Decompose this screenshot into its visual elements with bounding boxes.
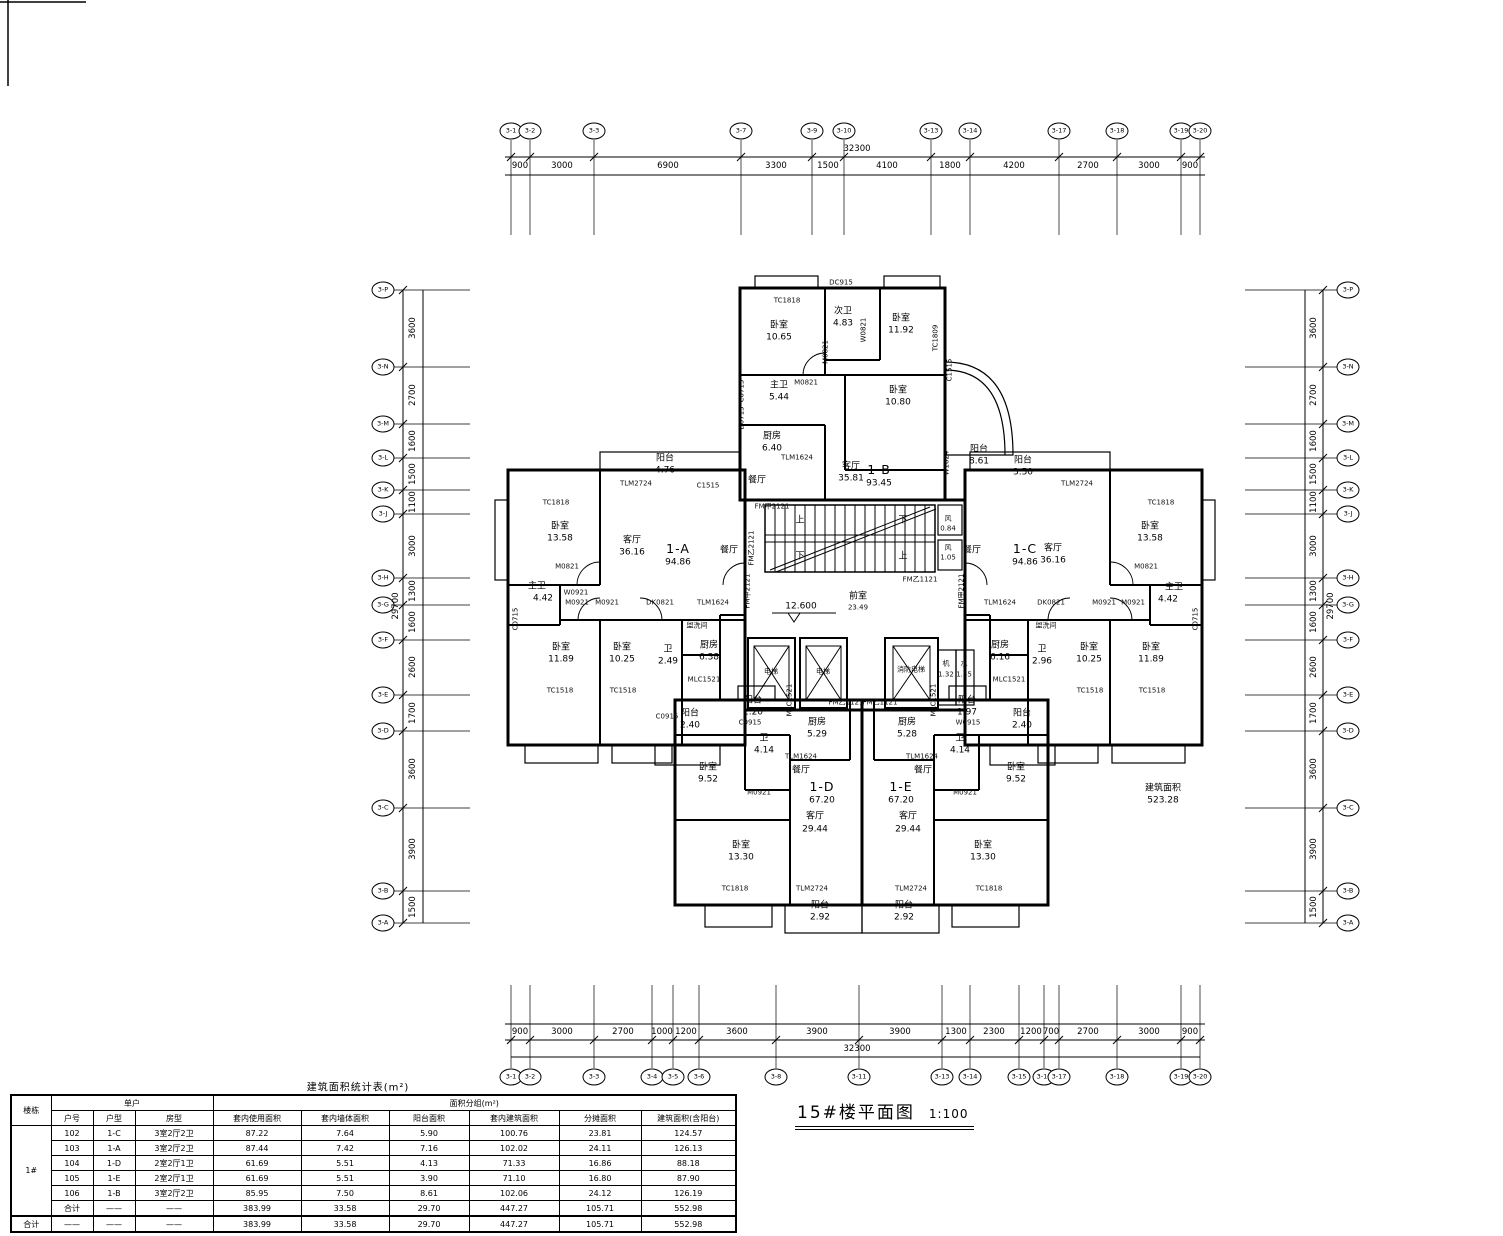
grid-bubble: 3-F: [372, 632, 395, 649]
room-label: 卧室: [551, 523, 569, 532]
table-cell: 合计: [51, 1201, 93, 1217]
level-marker: [772, 613, 836, 622]
table-header-cell: 分摊面积: [559, 1111, 641, 1126]
room-label: 67.20: [888, 797, 914, 806]
room-label: 厨房: [700, 642, 718, 651]
grid-bubble: 3-N: [372, 359, 395, 376]
grid-bubble: 3-14: [959, 1069, 982, 1086]
room-label: 2.49: [658, 658, 678, 667]
component-code-label: TLM2724: [1061, 481, 1093, 488]
grid-bubble: 3-13: [931, 1069, 954, 1086]
room-label: 29.44: [802, 826, 828, 835]
room-label: 6.16: [990, 654, 1010, 663]
dimension-value: 3600: [1310, 317, 1319, 339]
grid-bubble: 3-J: [1337, 506, 1360, 523]
dimension-value: 3900: [889, 1028, 911, 1037]
dimension-total: 32300: [843, 1045, 870, 1054]
grid-bubble: 3-17: [1048, 1069, 1071, 1086]
grid-bubble: 3-9: [801, 123, 824, 140]
room-label: 厨房: [898, 719, 916, 728]
component-code-label: FM乙1121: [903, 577, 938, 584]
dimension-value: 3600: [726, 1028, 748, 1037]
table-cell: 102.06: [469, 1186, 559, 1201]
grid-bubble: 3-3: [583, 1069, 606, 1086]
table-cell: 71.33: [469, 1156, 559, 1171]
room-label: 67.20: [809, 797, 835, 806]
room-label: 厨房: [763, 433, 781, 442]
table-cell: 合计: [11, 1216, 51, 1232]
table-cell: 5.90: [389, 1126, 469, 1141]
area-stats-table: 楼栋单户面积分组(m²)户号户型房型套内使用面积套内墙体面积阳台面积套内建筑面积…: [10, 1094, 737, 1233]
room-label: 29.44: [895, 826, 921, 835]
component-code-label: TC1518: [610, 688, 637, 695]
dimension-value: 1800: [939, 162, 961, 171]
room-label: 9.52: [1006, 776, 1026, 785]
table-cell: 1-E: [93, 1171, 135, 1186]
room-label: 下: [795, 553, 804, 562]
dimension-value: 2600: [409, 656, 418, 678]
room-label: 前室: [849, 593, 867, 602]
grid-bubble: 3-B: [372, 883, 395, 900]
dimension-value: 2600: [1310, 656, 1319, 678]
room-label: 卧室: [699, 764, 717, 773]
dimension-value: 4100: [876, 162, 898, 171]
table-cell: 16.80: [559, 1171, 641, 1186]
component-code-label: TLM2724: [620, 481, 652, 488]
grid-bubble: 3-C: [372, 800, 395, 817]
table-cell: 3室2厅2卫: [135, 1141, 213, 1156]
room-label: 13.58: [547, 535, 573, 544]
table-header-cell: 楼栋: [11, 1095, 51, 1126]
room-label: 卫: [1037, 646, 1046, 655]
room-label: 卧室: [1080, 644, 1098, 653]
room-label: 餐厅: [792, 767, 810, 776]
table-cell: 7.50: [301, 1186, 389, 1201]
room-label: 阳台: [970, 446, 988, 455]
component-code-label: FM甲2121: [959, 574, 966, 609]
dimension-total: 32300: [843, 145, 870, 154]
table-cell: 383.99: [213, 1216, 301, 1232]
room-label: 卧室: [892, 315, 910, 324]
component-code-label: FM乙1121: [829, 700, 864, 707]
room-label: 餐厅: [914, 767, 932, 776]
table-cell: 33.58: [301, 1216, 389, 1232]
grid-bubble: 3-7: [730, 123, 753, 140]
room-label: 4.76: [655, 467, 675, 476]
dimension-value: 2700: [1077, 1028, 1099, 1037]
grid-bubble: 3-P: [372, 282, 395, 299]
table-cell: 23.81: [559, 1126, 641, 1141]
component-code-label: TC1818: [543, 500, 570, 507]
component-code-label: 消防电梯: [897, 667, 925, 674]
room-label: 13.30: [970, 854, 996, 863]
room-label: 厨房: [808, 719, 826, 728]
dimension-value: 3000: [1138, 1028, 1160, 1037]
grid-bubble: 3-L: [1337, 450, 1360, 467]
component-code-label: TLM1624: [781, 455, 813, 462]
room-label: 36.16: [619, 549, 645, 558]
dimension-value: 3000: [1138, 162, 1160, 171]
table-row: 1031-A3室2厅2卫87.447.427.16102.0224.11126.…: [11, 1141, 736, 1156]
room-label: 卧室: [1142, 644, 1160, 653]
table-header-cell: 套内建筑面积: [469, 1111, 559, 1126]
room-label: 上: [795, 517, 804, 526]
room-label: 13.58: [1137, 535, 1163, 544]
room-label: 卫: [663, 646, 672, 655]
table-cell: 8.61: [389, 1186, 469, 1201]
component-code-label: DC915: [829, 280, 853, 287]
component-code-label: FM甲2121: [745, 574, 752, 609]
component-code-label: TLM2724: [796, 886, 828, 893]
grid-bubble: 3-N: [1337, 359, 1360, 376]
room-label: 1.20: [743, 709, 763, 718]
room-label: 4.83: [833, 320, 853, 329]
component-code-label: 1.32: [938, 672, 954, 679]
dimension-value: 1300: [1310, 580, 1319, 602]
grid-bubble: 3-4: [641, 1069, 664, 1086]
dimension-value: 900: [1182, 1028, 1198, 1037]
table-cell: 29.70: [389, 1216, 469, 1232]
room-label: 10.80: [885, 399, 911, 408]
room-label: 客厅: [899, 813, 917, 822]
dimension-total: 29700: [392, 592, 401, 619]
dimension-value: 3000: [551, 1028, 573, 1037]
grid-bubble: 3-B: [1337, 883, 1360, 900]
room-label: 卧室: [732, 842, 750, 851]
dimension-value: 1500: [409, 463, 418, 485]
dimension-value: 1300: [409, 580, 418, 602]
room-label: 卧室: [1141, 523, 1159, 532]
unit-id-label: 1-D: [809, 781, 834, 794]
table-cell: 4.13: [389, 1156, 469, 1171]
table-cell: ——: [51, 1216, 93, 1232]
grid-bubble: 3-11: [848, 1069, 871, 1086]
grid-bubble: 3-G: [1337, 597, 1360, 614]
component-code-label: 0.84: [940, 526, 956, 533]
table-caption: 建筑面积统计表(m²): [307, 1079, 410, 1094]
table-header-cell: 房型: [135, 1111, 213, 1126]
room-label: 11.89: [548, 656, 574, 665]
room-label: 客厅: [806, 813, 824, 822]
grid-bubble: 3-E: [372, 687, 395, 704]
table-cell: 3室2厅2卫: [135, 1126, 213, 1141]
component-code-label: TC1818: [722, 886, 749, 893]
grid-bubble: 3-K: [1337, 482, 1360, 499]
table-grand-total-row: 合计——————383.9933.5829.70447.27105.71552.…: [11, 1216, 736, 1232]
table-cell: 102.02: [469, 1141, 559, 1156]
dimension-value: 900: [1182, 162, 1198, 171]
component-code-label: MLC1521: [787, 684, 794, 717]
component-code-label: M0921: [565, 600, 589, 607]
table-cell: 106: [51, 1186, 93, 1201]
room-label: 5.44: [769, 394, 789, 403]
table-cell: ——: [135, 1201, 213, 1217]
table-cell: 552.98: [641, 1216, 736, 1232]
room-label: 10.25: [609, 656, 635, 665]
room-label: 94.86: [665, 559, 691, 568]
table-cell: 87.90: [641, 1171, 736, 1186]
component-code-label: DK0821: [1037, 600, 1065, 607]
table-cell: 24.12: [559, 1186, 641, 1201]
dimension-value: 3600: [409, 758, 418, 780]
dimension-value: 1500: [817, 162, 839, 171]
room-label: 卧室: [613, 644, 631, 653]
room-label: 93.45: [866, 480, 892, 489]
dimension-total: 29700: [1327, 592, 1336, 619]
component-code-label: 电梯: [764, 669, 778, 676]
grid-bubble: 3-13: [920, 123, 943, 140]
component-code-label: TLM1624: [984, 600, 1016, 607]
dimension-value: 3600: [1310, 758, 1319, 780]
table-cell: ——: [135, 1216, 213, 1232]
room-label: 客厅: [842, 463, 860, 472]
room-label: 13.30: [728, 854, 754, 863]
table-cell: 5.51: [301, 1171, 389, 1186]
table-cell: 24.11: [559, 1141, 641, 1156]
component-code-label: M0921: [1121, 600, 1145, 607]
table-header-cell: 户型: [93, 1111, 135, 1126]
room-label: 卧室: [552, 644, 570, 653]
component-code-label: M0821: [794, 380, 818, 387]
unit-id-label: 1-B: [867, 464, 891, 477]
room-label: 餐厅: [720, 547, 738, 556]
table-cell: 61.69: [213, 1171, 301, 1186]
room-label: 上: [898, 553, 907, 562]
room-label: 6.38: [699, 654, 719, 663]
table-row: 1041-D2室2厅1卫61.695.514.1371.3316.8688.18: [11, 1156, 736, 1171]
table-cell: 1-A: [93, 1141, 135, 1156]
room-label: 卧室: [974, 842, 992, 851]
table-cell: 1-B: [93, 1186, 135, 1201]
component-code-label: 1.05: [940, 555, 956, 562]
stats-table-body: 1#1021-C3室2厅2卫87.227.645.90100.7623.8112…: [11, 1126, 736, 1233]
dimension-value: 1700: [409, 702, 418, 724]
table-cell: 88.18: [641, 1156, 736, 1171]
room-label: 阳台: [1013, 710, 1031, 719]
table-cell: 3室2厅2卫: [135, 1186, 213, 1201]
table-cell: 85.95: [213, 1186, 301, 1201]
drawing-title: 15#楼平面图 1:100: [795, 1098, 974, 1130]
frame-corner: [0, 0, 86, 86]
grid-bubble: 3-L: [372, 450, 395, 467]
dimension-value: 1500: [1310, 896, 1319, 918]
dimension-value: 1700: [1310, 702, 1319, 724]
unit-id-label: 1-A: [666, 543, 690, 556]
component-code-label: FM甲2121: [755, 504, 790, 511]
table-cell: ——: [93, 1216, 135, 1232]
dimension-value: 1600: [1310, 430, 1319, 452]
room-label: 主卫: [528, 583, 546, 592]
room-label: 12.600: [785, 603, 817, 612]
component-code-label: FM乙1121: [863, 700, 898, 707]
grid-bubble: 3-17: [1048, 123, 1071, 140]
room-label: 餐厅: [963, 547, 981, 556]
dimension-value: 1600: [409, 611, 418, 633]
table-cell: 126.13: [641, 1141, 736, 1156]
dimension-value: 3000: [409, 535, 418, 557]
component-code-label: 盥洗间: [1036, 623, 1057, 630]
component-code-label: M0821: [1134, 564, 1158, 571]
grid-bubble: 3-6: [688, 1069, 711, 1086]
component-code-label: TLM1624: [906, 754, 938, 761]
dimension-value: 3600: [409, 317, 418, 339]
table-header-cell: 套内使用面积: [213, 1111, 301, 1126]
dimension-value: 1100: [1310, 491, 1319, 513]
stats-table-head: 楼栋单户面积分组(m²)户号户型房型套内使用面积套内墙体面积阳台面积套内建筑面积…: [11, 1095, 736, 1126]
room-label: 阳台: [656, 455, 674, 464]
table-cell: 2室2厅1卫: [135, 1171, 213, 1186]
table-cell: 29.70: [389, 1201, 469, 1217]
room-label: 10.65: [766, 334, 792, 343]
room-label: 6.40: [762, 445, 782, 454]
component-code-label: 1.55: [956, 672, 972, 679]
component-code-label: 电梯: [816, 669, 830, 676]
room-label: 卫: [759, 735, 768, 744]
table-cell: 447.27: [469, 1201, 559, 1217]
component-code-label: TC1818: [976, 886, 1003, 893]
component-code-label: TC1818: [1148, 500, 1175, 507]
grid-bubble: 3-D: [372, 723, 395, 740]
room-label: 8.61: [969, 458, 989, 467]
table-header-cell: 套内墙体面积: [301, 1111, 389, 1126]
component-code-label: C1515: [697, 483, 720, 490]
room-label: 厨房: [991, 642, 1009, 651]
room-label: 4.42: [1158, 596, 1178, 605]
table-header-cell: 阳台面积: [389, 1111, 469, 1126]
grid-bubble: 3-C: [1337, 800, 1360, 817]
table-cell: 102: [51, 1126, 93, 1141]
dimension-value: 2700: [1310, 384, 1319, 406]
room-label: 2.40: [680, 722, 700, 731]
table-cell: 1-D: [93, 1156, 135, 1171]
dimension-value: 3000: [1310, 535, 1319, 557]
room-label: 5.29: [807, 731, 827, 740]
component-code-label: MLC1521: [931, 684, 938, 717]
dimension-value: 1500: [1310, 463, 1319, 485]
dimension-value: 3000: [551, 162, 573, 171]
drawing-title-text: 15#楼平面图: [797, 1098, 915, 1123]
component-code-label: M0921: [747, 790, 771, 797]
room-label: 4.42: [533, 595, 553, 604]
dimension-value: 900: [512, 1028, 528, 1037]
grid-bubble: 3-18: [1106, 1069, 1129, 1086]
room-label: 卫: [955, 735, 964, 744]
dimension-value: 4200: [1003, 162, 1025, 171]
staircase: [765, 505, 936, 572]
component-code-label: DK0821: [646, 600, 674, 607]
plan-linework: [0, 0, 1503, 1236]
component-code-label: C1515: [947, 359, 954, 382]
dimension-value: 1000: [651, 1028, 673, 1037]
room-label: 3.50: [1013, 469, 1033, 478]
room-label: 主卫: [1165, 584, 1183, 593]
table-header-cell: 面积分组(m²): [213, 1095, 736, 1111]
table-cell: 87.44: [213, 1141, 301, 1156]
component-code-label: C0715: [513, 608, 520, 631]
dimension-value: 1500: [409, 896, 418, 918]
room-label: 卧室: [770, 322, 788, 331]
room-label: 下: [898, 517, 907, 526]
table-cell: 100.76: [469, 1126, 559, 1141]
component-code-label: 机: [943, 661, 950, 668]
component-code-label: MLC1521: [993, 677, 1026, 684]
component-code-label: 水: [961, 661, 968, 668]
table-cell: 447.27: [469, 1216, 559, 1232]
component-code-label: TLM2724: [895, 886, 927, 893]
table-row: 合计————383.9933.5829.70447.27105.71552.98: [11, 1201, 736, 1217]
component-code-label: 风: [945, 545, 952, 552]
table-cell: 383.99: [213, 1201, 301, 1217]
component-code-label: 23.49: [848, 605, 868, 612]
grid-bubble: 3-H: [372, 570, 395, 587]
room-label: 阳台: [744, 697, 762, 706]
component-code-label: FM乙2121: [749, 531, 756, 566]
table-cell: 103: [51, 1141, 93, 1156]
grid-bubble: 3-14: [959, 123, 982, 140]
component-code-label: C0715: [1193, 608, 1200, 631]
component-code-label: TC1518: [1139, 688, 1166, 695]
room-label: 2.92: [894, 914, 914, 923]
table-row: 1#1021-C3室2厅2卫87.227.645.90100.7623.8112…: [11, 1126, 736, 1141]
table-cell: 7.16: [389, 1141, 469, 1156]
floor-plan-sheet: 15#楼平面图 1:100 建筑面积统计表(m²) 楼栋单户面积分组(m²)户号…: [0, 0, 1503, 1236]
component-code-label: TLM1624: [697, 600, 729, 607]
dimension-value: 2300: [983, 1028, 1005, 1037]
unit-id-label: 1-C: [1013, 543, 1037, 556]
table-cell: 16.86: [559, 1156, 641, 1171]
table-header-cell: 建筑面积(含阳台): [641, 1111, 736, 1126]
table-cell: 61.69: [213, 1156, 301, 1171]
dimension-value: 1200: [675, 1028, 697, 1037]
room-label: 阳台: [895, 902, 913, 911]
table-cell: 105: [51, 1171, 93, 1186]
dimension-value: 1200: [1020, 1028, 1042, 1037]
grid-bubble: 3-H: [1337, 570, 1360, 587]
dimension-value: 700: [1043, 1028, 1059, 1037]
component-code-label: W0821: [861, 318, 868, 343]
grid-bubble: 3-15: [1008, 1069, 1031, 1086]
grid-bubble: 3-20: [1189, 1069, 1212, 1086]
component-code-label: D0715: [739, 406, 746, 429]
room-label: 主卫: [770, 382, 788, 391]
grid-bubble: 3-M: [372, 416, 395, 433]
room-label: 阳台: [1014, 457, 1032, 466]
room-label: 10.25: [1076, 656, 1102, 665]
grid-bubble: 3-D: [1337, 723, 1360, 740]
room-label: 94.86: [1012, 559, 1038, 568]
table-cell: 33.58: [301, 1201, 389, 1217]
component-code-label: 盥洗间: [687, 623, 708, 630]
room-label: 2.40: [1012, 722, 1032, 731]
grid-bubble: 3-F: [1337, 632, 1360, 649]
table-cell: 5.51: [301, 1156, 389, 1171]
unit-id-label: 1-E: [889, 781, 912, 794]
grid-bubble: 3-18: [1106, 123, 1129, 140]
grid-bubble: 3-8: [765, 1069, 788, 1086]
room-label: 9.52: [698, 776, 718, 785]
grid-bubble: 3-3: [583, 123, 606, 140]
drawing-scale: 1:100: [929, 1107, 969, 1121]
component-code-label: C0715: [739, 380, 746, 403]
component-code-label: MLC1521: [688, 677, 721, 684]
room-label: 35.81: [838, 475, 864, 484]
table-header-cell: 单户: [51, 1095, 213, 1111]
room-label: 4.14: [950, 747, 970, 756]
component-code-label: TLM1624: [785, 754, 817, 761]
grid-bubble: 3-A: [1337, 915, 1360, 932]
room-label: 2.92: [810, 914, 830, 923]
dimension-value: 1100: [409, 491, 418, 513]
